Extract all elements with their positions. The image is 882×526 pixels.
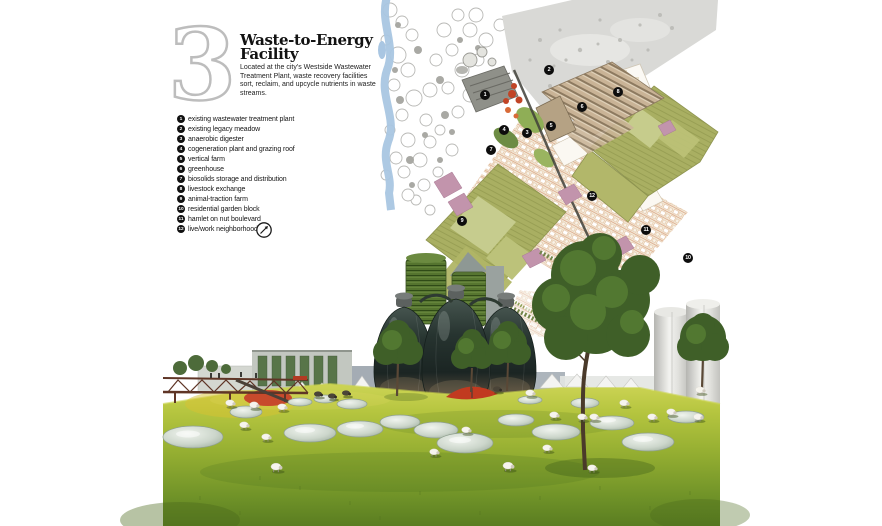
legend-item: 4 cogeneration plant and grazing roof xyxy=(177,144,295,154)
legend-item: 8 livestock exchange xyxy=(177,184,295,194)
legend-item: 9 animal-traction farm xyxy=(177,194,295,204)
poster-canvas: 3 Waste-to-Energy Facility Located at th… xyxy=(0,0,882,526)
title-line-2: Facility xyxy=(240,45,298,63)
legend-item-number: 2 xyxy=(177,125,185,133)
legend-item-number: 11 xyxy=(177,215,185,223)
legend-item-label: residential garden block xyxy=(188,206,260,213)
legend-item-label: biosolids storage and distribution xyxy=(188,176,287,183)
legend-item-number: 5 xyxy=(177,155,185,163)
legend-item-number: 3 xyxy=(177,135,185,143)
legend-item: 7 biosolids storage and distribution xyxy=(177,174,295,184)
legend-item: 10 residential garden block xyxy=(177,204,295,214)
legend-item: 5 vertical farm xyxy=(177,154,295,164)
site-plan-and-render-illustration xyxy=(0,0,882,526)
legend-item: 2 existing legacy meadow xyxy=(177,124,295,134)
legend-item-number: 4 xyxy=(177,145,185,153)
legend-item-label: cogeneration plant and grazing roof xyxy=(188,146,295,153)
legend-item: 1 existing wastewater treatment plant xyxy=(177,114,295,124)
description-text: Located at the city’s Westside Wastewate… xyxy=(240,64,376,98)
legend-item-label: existing wastewater treatment plant xyxy=(188,116,294,123)
legend-list: 1 existing wastewater treatment plant 2 … xyxy=(177,114,295,234)
legend-item-number: 9 xyxy=(177,195,185,203)
legend-item-number: 7 xyxy=(177,175,185,183)
title-block: Waste-to-Energy Facility Located at the … xyxy=(240,33,380,98)
legend-item-label: greenhouse xyxy=(188,166,224,173)
legend-item-number: 6 xyxy=(177,165,185,173)
legend-item-label: livestock exchange xyxy=(188,186,245,193)
legend-item-label: live/work neighborhood xyxy=(188,226,258,233)
legend-item-label: hamlet on nut boulevard xyxy=(188,216,261,223)
legend-item-number: 10 xyxy=(177,205,185,213)
legend-item-label: vertical farm xyxy=(188,156,225,163)
perspective-render xyxy=(120,233,750,526)
legend-item: 6 greenhouse xyxy=(177,164,295,174)
legend-item-label: anaerobic digester xyxy=(188,136,244,143)
legend-item-label: existing legacy meadow xyxy=(188,126,260,133)
legend-item-number: 12 xyxy=(177,225,185,233)
forest-shadows xyxy=(392,22,481,188)
legend-item-number: 1 xyxy=(177,115,185,123)
legend-item: 12 live/work neighborhood xyxy=(177,224,295,234)
page-title: Waste-to-Energy Facility xyxy=(240,33,380,61)
legend-item-number: 8 xyxy=(177,185,185,193)
north-arrow-icon xyxy=(255,221,273,239)
section-number: 3 xyxy=(168,18,236,114)
legend-item-label: animal-traction farm xyxy=(188,196,248,203)
legend-item: 3 anaerobic digester xyxy=(177,134,295,144)
legend-item: 11 hamlet on nut boulevard xyxy=(177,214,295,224)
